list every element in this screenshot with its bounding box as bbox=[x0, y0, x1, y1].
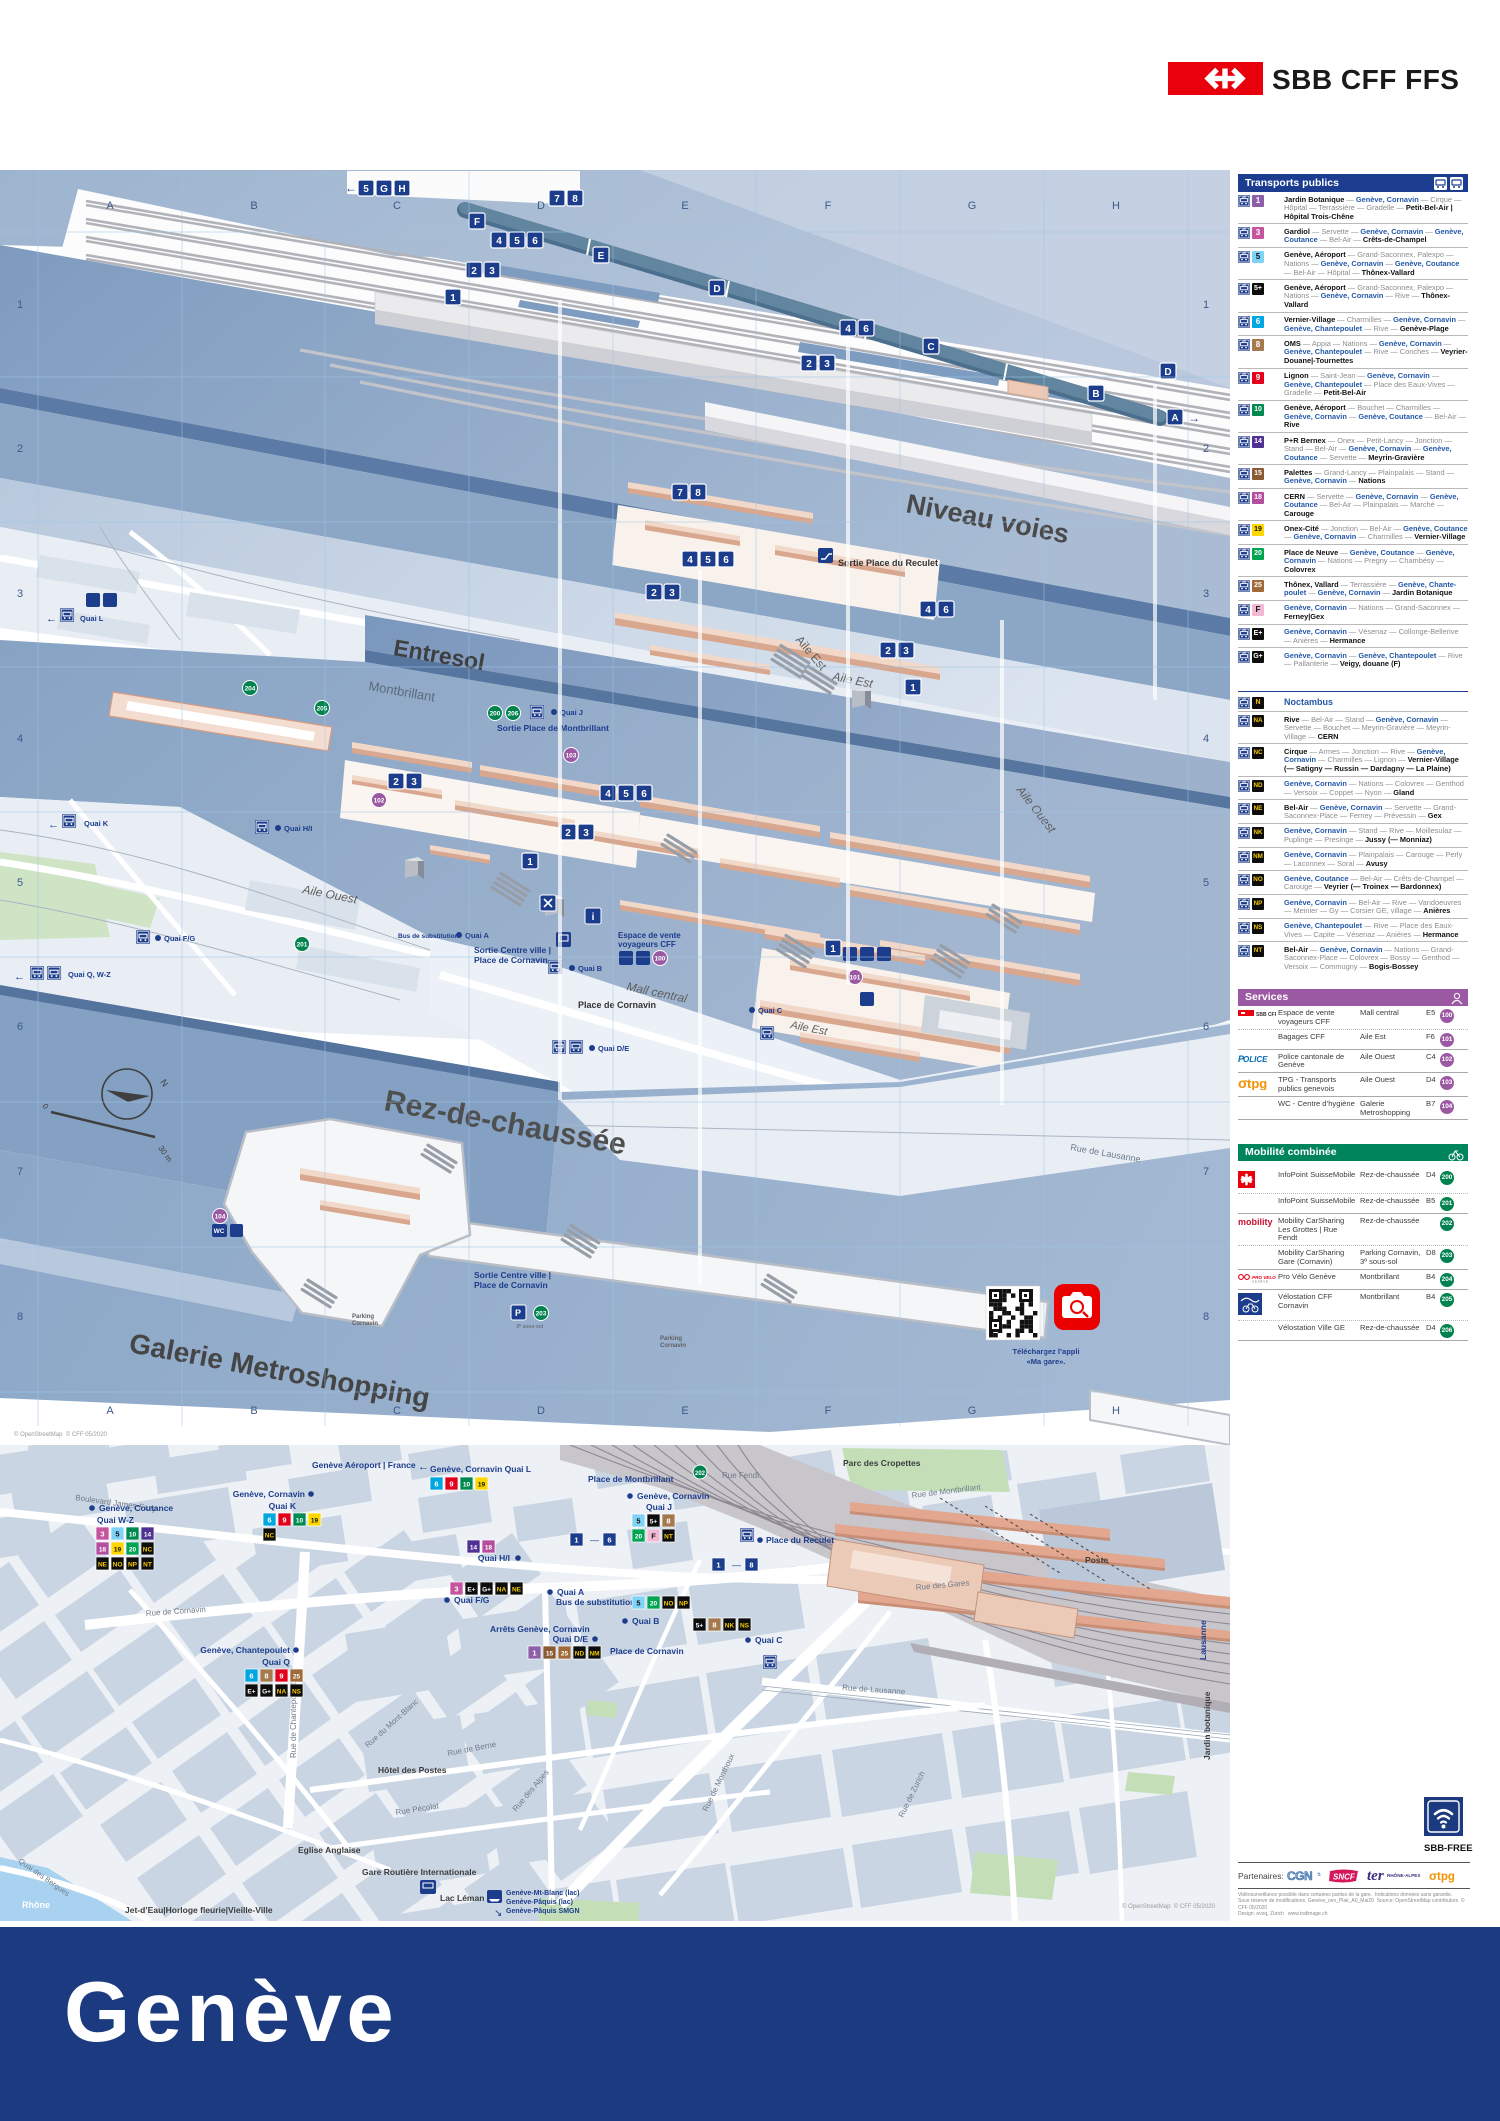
svg-text:Sortie Place de Montbrillant: Sortie Place de Montbrillant bbox=[497, 723, 609, 733]
svg-text:E: E bbox=[681, 200, 688, 212]
svg-text:8: 8 bbox=[1203, 1311, 1209, 1323]
svg-text:2: 2 bbox=[885, 646, 891, 657]
svg-text:←: ← bbox=[14, 971, 25, 983]
svg-text:Jardin botanique: Jardin botanique bbox=[1202, 1691, 1212, 1760]
svg-text:C: C bbox=[393, 200, 401, 212]
svg-text:8: 8 bbox=[572, 194, 578, 205]
svg-text:←: ← bbox=[418, 1461, 429, 1473]
svg-text:9: 9 bbox=[282, 1515, 286, 1524]
svg-text:6: 6 bbox=[723, 555, 729, 566]
svg-text:Poste: Poste bbox=[1085, 1555, 1108, 1565]
svg-text:1: 1 bbox=[830, 944, 836, 955]
svg-text:NO: NO bbox=[664, 1600, 674, 1607]
svg-text:3º sous-sol: 3º sous-sol bbox=[516, 1323, 543, 1330]
svg-text:5: 5 bbox=[17, 877, 23, 889]
svg-text:NE: NE bbox=[512, 1586, 522, 1593]
svg-text:Quai W-Z: Quai W-Z bbox=[97, 1515, 134, 1525]
svg-text:3: 3 bbox=[411, 777, 417, 788]
svg-text:A: A bbox=[106, 200, 114, 212]
svg-text:10: 10 bbox=[296, 1517, 304, 1524]
svg-text:8: 8 bbox=[712, 1620, 716, 1629]
svg-text:200: 200 bbox=[490, 710, 501, 717]
svg-text:4: 4 bbox=[496, 236, 502, 247]
svg-text:5: 5 bbox=[363, 184, 369, 195]
svg-text:Parking: Parking bbox=[352, 1314, 374, 1320]
svg-text:Bus de substitution: Bus de substitution bbox=[398, 933, 459, 940]
svg-text:Rhône: Rhône bbox=[22, 1900, 50, 1910]
svg-text:4: 4 bbox=[845, 324, 851, 335]
svg-text:8: 8 bbox=[264, 1671, 268, 1680]
svg-text:NP: NP bbox=[128, 1561, 138, 1568]
svg-text:F: F bbox=[825, 1405, 832, 1417]
svg-text:NS: NS bbox=[740, 1622, 750, 1629]
svg-text:201: 201 bbox=[297, 941, 308, 948]
svg-text:Genève, Cornavin Quai L: Genève, Cornavin Quai L bbox=[430, 1464, 531, 1474]
svg-text:NS: NS bbox=[292, 1688, 302, 1695]
svg-text:3: 3 bbox=[903, 646, 909, 657]
svg-text:4: 4 bbox=[17, 733, 23, 745]
svg-text:ND: ND bbox=[575, 1650, 585, 1657]
svg-text:2: 2 bbox=[471, 266, 477, 277]
svg-text:3: 3 bbox=[669, 588, 675, 599]
svg-text:15: 15 bbox=[546, 1650, 554, 1657]
svg-text:Genève, Coutance: Genève, Coutance bbox=[99, 1503, 173, 1513]
svg-text:8: 8 bbox=[695, 488, 701, 499]
svg-text:5: 5 bbox=[636, 1598, 640, 1607]
svg-text:202: 202 bbox=[695, 1471, 706, 1477]
svg-text:103: 103 bbox=[566, 752, 577, 759]
svg-text:SNCF: SNCF bbox=[1333, 1872, 1356, 1881]
svg-text:Place de Cornavin: Place de Cornavin bbox=[474, 955, 548, 965]
svg-text:G: G bbox=[968, 200, 977, 212]
svg-text:Quai A: Quai A bbox=[557, 1587, 584, 1597]
svg-text:Quai H/I: Quai H/I bbox=[478, 1553, 510, 1563]
svg-text:Gare Routière Internationale: Gare Routière Internationale bbox=[362, 1867, 477, 1877]
svg-text:F: F bbox=[825, 200, 832, 212]
svg-text:5: 5 bbox=[636, 1516, 640, 1525]
svg-text:Place de Montbrillant: Place de Montbrillant bbox=[588, 1474, 674, 1484]
svg-text:Quai K: Quai K bbox=[269, 1501, 297, 1511]
svg-text:3: 3 bbox=[1203, 588, 1209, 600]
svg-text:OLICE: OLICE bbox=[1243, 1055, 1268, 1064]
svg-text:tpg: tpg bbox=[1247, 1076, 1267, 1090]
svg-text:6: 6 bbox=[641, 789, 647, 800]
svg-text:6: 6 bbox=[249, 1671, 253, 1680]
svg-text:A: A bbox=[106, 1405, 114, 1417]
svg-text:Cornavin: Cornavin bbox=[660, 1343, 686, 1349]
svg-text:Quai D/E: Quai D/E bbox=[598, 1044, 629, 1053]
svg-text:Parc des Cropettes: Parc des Cropettes bbox=[843, 1458, 921, 1468]
svg-text:6: 6 bbox=[1203, 1021, 1209, 1033]
svg-text:σ: σ bbox=[1429, 1869, 1437, 1883]
svg-text:19: 19 bbox=[114, 1546, 122, 1553]
svg-text:Sortie Centre ville |: Sortie Centre ville | bbox=[474, 945, 551, 955]
svg-text:19: 19 bbox=[478, 1481, 486, 1488]
svg-text:6: 6 bbox=[863, 324, 869, 335]
svg-text:4: 4 bbox=[687, 555, 693, 566]
svg-text:Rue Fendt: Rue Fendt bbox=[722, 1471, 760, 1480]
svg-text:5: 5 bbox=[623, 789, 629, 800]
svg-text:G: G bbox=[968, 1405, 977, 1417]
svg-text:Quai D/E: Quai D/E bbox=[553, 1634, 589, 1644]
svg-text:20: 20 bbox=[635, 1533, 643, 1540]
svg-text:H: H bbox=[1112, 200, 1120, 212]
svg-text:8: 8 bbox=[17, 1311, 23, 1323]
svg-text:SBB CFF FFS: SBB CFF FFS bbox=[1256, 1012, 1276, 1017]
svg-text:204: 204 bbox=[245, 685, 256, 692]
svg-text:G: G bbox=[380, 184, 388, 195]
svg-text:NC: NC bbox=[143, 1546, 153, 1553]
svg-text:Quai C: Quai C bbox=[755, 1635, 782, 1645]
svg-text:NA: NA bbox=[277, 1688, 287, 1695]
svg-text:Quai Q: Quai Q bbox=[262, 1657, 290, 1667]
svg-text:NO: NO bbox=[113, 1561, 123, 1568]
svg-text:1: 1 bbox=[17, 299, 23, 311]
svg-text:104: 104 bbox=[215, 1213, 226, 1220]
svg-text:205: 205 bbox=[317, 705, 328, 712]
svg-text:←: ← bbox=[345, 181, 357, 195]
svg-text:Quai F/G: Quai F/G bbox=[454, 1595, 490, 1605]
svg-text:E+: E+ bbox=[467, 1586, 475, 1593]
svg-text:5: 5 bbox=[705, 555, 711, 566]
svg-text:PRO VELO: PRO VELO bbox=[1252, 1275, 1276, 1280]
svg-text:NK: NK bbox=[725, 1622, 735, 1629]
svg-text:mobility: mobility bbox=[1238, 1217, 1273, 1227]
svg-text:voyageurs CFF: voyageurs CFF bbox=[618, 940, 676, 949]
svg-text:20: 20 bbox=[129, 1546, 137, 1553]
svg-text:Genève-Mt-Blanc (lac): Genève-Mt-Blanc (lac) bbox=[506, 1890, 580, 1897]
svg-text:Quai F/G: Quai F/G bbox=[164, 934, 195, 943]
svg-text:↘: ↘ bbox=[494, 1908, 502, 1919]
svg-text:25: 25 bbox=[293, 1673, 301, 1680]
svg-text:2: 2 bbox=[565, 828, 571, 839]
svg-text:«Ma gare».: «Ma gare». bbox=[1027, 1357, 1066, 1366]
svg-text:—: — bbox=[590, 1535, 599, 1545]
svg-text:Genève, Cornavin: Genève, Cornavin bbox=[233, 1489, 305, 1499]
svg-text:Place de Cornavin: Place de Cornavin bbox=[610, 1646, 684, 1656]
svg-text:—: — bbox=[732, 1560, 741, 1570]
svg-text:E+: E+ bbox=[247, 1688, 255, 1695]
svg-text:Genève-Pâquis SMGN: Genève-Pâquis SMGN bbox=[506, 1908, 580, 1915]
svg-text:Quai Q, W-Z: Quai Q, W-Z bbox=[68, 970, 111, 979]
svg-text:Genève, Cornavin: Genève, Cornavin bbox=[637, 1491, 709, 1501]
svg-text:Genève Aéroport | France: Genève Aéroport | France bbox=[312, 1460, 416, 1470]
svg-text:6: 6 bbox=[434, 1479, 438, 1488]
svg-text:Espace de vente: Espace de vente bbox=[618, 931, 681, 940]
svg-text:Quai C: Quai C bbox=[758, 1006, 783, 1015]
svg-text:B: B bbox=[1092, 389, 1099, 400]
svg-text:2: 2 bbox=[17, 443, 23, 455]
svg-text:8: 8 bbox=[666, 1516, 670, 1525]
svg-text:Sortie Place du Reculet: Sortie Place du Reculet bbox=[838, 558, 938, 568]
svg-text:NE: NE bbox=[98, 1561, 108, 1568]
svg-text:Eglise Anglaise: Eglise Anglaise bbox=[298, 1845, 361, 1855]
svg-text:i: i bbox=[592, 912, 595, 923]
svg-text:E: E bbox=[681, 1405, 688, 1417]
svg-text:4: 4 bbox=[1203, 733, 1209, 745]
svg-text:20: 20 bbox=[650, 1600, 658, 1607]
svg-text:H: H bbox=[1112, 1405, 1120, 1417]
svg-text:Lac Léman: Lac Léman bbox=[440, 1893, 484, 1903]
svg-text:G+: G+ bbox=[482, 1586, 491, 1593]
svg-text:3: 3 bbox=[824, 359, 830, 370]
svg-text:5: 5 bbox=[1203, 877, 1209, 889]
svg-text:Quai J: Quai J bbox=[560, 708, 583, 717]
svg-text:Jet-d’Eau|Horloge fleurie|Viei: Jet-d’Eau|Horloge fleurie|Vieille-Ville bbox=[125, 1905, 273, 1915]
svg-text:206: 206 bbox=[508, 710, 519, 717]
svg-text:NP: NP bbox=[679, 1600, 689, 1607]
svg-text:3: 3 bbox=[489, 266, 495, 277]
svg-text:3: 3 bbox=[100, 1529, 104, 1538]
svg-text:Place de Cornavin: Place de Cornavin bbox=[474, 1280, 548, 1290]
svg-text:5: 5 bbox=[514, 236, 520, 247]
svg-text:Place du Reculet: Place du Reculet bbox=[766, 1535, 834, 1545]
svg-text:Parking: Parking bbox=[660, 1336, 682, 1342]
svg-text:3: 3 bbox=[17, 588, 23, 600]
svg-text:SBB CFF FFS: SBB CFF FFS bbox=[1272, 64, 1460, 95]
svg-text:D: D bbox=[537, 200, 545, 212]
svg-text:102: 102 bbox=[374, 797, 385, 804]
svg-text:6: 6 bbox=[943, 605, 949, 616]
svg-text:ter: ter bbox=[1367, 1868, 1384, 1884]
svg-text:1: 1 bbox=[527, 857, 533, 868]
svg-text:tpg: tpg bbox=[1437, 1871, 1455, 1883]
svg-text:Quai K: Quai K bbox=[84, 819, 109, 828]
svg-text:4: 4 bbox=[925, 605, 931, 616]
svg-text:8: 8 bbox=[749, 1560, 753, 1569]
svg-text:4: 4 bbox=[605, 789, 611, 800]
svg-text:6: 6 bbox=[607, 1535, 611, 1544]
svg-text:A: A bbox=[1171, 413, 1178, 424]
svg-text:B: B bbox=[250, 1405, 257, 1417]
svg-text:2: 2 bbox=[393, 777, 399, 788]
svg-text:9: 9 bbox=[449, 1479, 453, 1488]
svg-text:1: 1 bbox=[574, 1535, 578, 1544]
svg-text:5+: 5+ bbox=[696, 1622, 704, 1629]
svg-text:D: D bbox=[713, 284, 720, 295]
svg-text:Quai B: Quai B bbox=[632, 1616, 659, 1626]
svg-text:2: 2 bbox=[806, 359, 812, 370]
svg-text:NA: NA bbox=[497, 1586, 507, 1593]
svg-text:7: 7 bbox=[1203, 1166, 1209, 1178]
svg-text:5+: 5+ bbox=[650, 1518, 658, 1525]
svg-text:1: 1 bbox=[716, 1560, 720, 1569]
svg-text:⇅: ⇅ bbox=[1317, 1872, 1321, 1878]
svg-text:7: 7 bbox=[17, 1166, 23, 1178]
svg-text:RHÔNE-ALPES: RHÔNE-ALPES bbox=[1387, 1871, 1420, 1878]
svg-text:Place de Cornavin: Place de Cornavin bbox=[578, 1000, 656, 1010]
svg-text:NC: NC bbox=[265, 1532, 275, 1539]
svg-text:Arrêts Genève, Cornavin: Arrêts Genève, Cornavin bbox=[490, 1624, 590, 1634]
svg-text:D: D bbox=[537, 1405, 545, 1417]
svg-text:10: 10 bbox=[463, 1481, 471, 1488]
svg-text:Genève, Chantepoulet: Genève, Chantepoulet bbox=[200, 1645, 290, 1655]
svg-text:Hôtel des Postes: Hôtel des Postes bbox=[378, 1765, 447, 1775]
svg-text:18: 18 bbox=[485, 1544, 493, 1551]
svg-text:H: H bbox=[398, 184, 405, 195]
svg-text:2: 2 bbox=[1203, 443, 1209, 455]
svg-text:Quai L: Quai L bbox=[80, 614, 104, 623]
svg-text:C: C bbox=[927, 342, 934, 353]
svg-text:18: 18 bbox=[99, 1546, 107, 1553]
svg-text:Quai B: Quai B bbox=[578, 964, 603, 973]
svg-text:←: ← bbox=[48, 819, 59, 831]
svg-text:→: → bbox=[1188, 411, 1200, 425]
svg-text:14: 14 bbox=[470, 1544, 478, 1551]
svg-text:5: 5 bbox=[115, 1529, 119, 1538]
svg-text:Lausanne: Lausanne bbox=[1198, 1620, 1208, 1660]
svg-text:Bus de substitution: Bus de substitution bbox=[556, 1597, 635, 1607]
svg-text:14: 14 bbox=[144, 1531, 152, 1538]
svg-text:7: 7 bbox=[554, 194, 560, 205]
svg-text:100: 100 bbox=[655, 955, 666, 962]
svg-text:Quai J: Quai J bbox=[646, 1502, 672, 1512]
svg-text:10: 10 bbox=[129, 1531, 137, 1538]
svg-text:© OpenStreetMap © CFF 05/2020: © OpenStreetMap © CFF 05/2020 bbox=[14, 1431, 108, 1438]
svg-text:Quai H/I: Quai H/I bbox=[284, 824, 312, 833]
svg-text:Cornavin: Cornavin bbox=[352, 1321, 378, 1327]
svg-text:6: 6 bbox=[17, 1021, 23, 1033]
svg-text:2: 2 bbox=[651, 588, 657, 599]
svg-text:G+: G+ bbox=[262, 1688, 271, 1695]
svg-text:NT: NT bbox=[664, 1533, 673, 1540]
svg-text:C: C bbox=[393, 1405, 401, 1417]
svg-text:19: 19 bbox=[311, 1517, 319, 1524]
svg-text:© OpenStreetMap © CFF 05/2020: © OpenStreetMap © CFF 05/2020 bbox=[1122, 1903, 1216, 1910]
svg-text:Sortie Centre ville |: Sortie Centre ville | bbox=[474, 1270, 551, 1280]
svg-text:203: 203 bbox=[536, 1310, 547, 1317]
svg-text:Genève-Pâquis (lac): Genève-Pâquis (lac) bbox=[506, 1899, 573, 1906]
svg-text:101: 101 bbox=[850, 974, 861, 981]
svg-text:P: P bbox=[515, 1308, 521, 1318]
svg-text:3: 3 bbox=[454, 1584, 458, 1593]
svg-text:F: F bbox=[651, 1531, 656, 1540]
svg-text:CGN: CGN bbox=[1287, 1869, 1312, 1883]
svg-text:1: 1 bbox=[450, 293, 456, 304]
svg-text:7: 7 bbox=[677, 488, 683, 499]
svg-text:F: F bbox=[474, 217, 480, 228]
svg-text:NM: NM bbox=[589, 1650, 599, 1657]
svg-text:9: 9 bbox=[279, 1671, 283, 1680]
svg-text:D: D bbox=[1164, 367, 1171, 378]
svg-text:B: B bbox=[250, 200, 257, 212]
svg-text:1: 1 bbox=[1203, 299, 1209, 311]
svg-text:6: 6 bbox=[532, 236, 538, 247]
svg-text:3: 3 bbox=[583, 828, 589, 839]
svg-text:Téléchargez l’appli: Téléchargez l’appli bbox=[1012, 1347, 1079, 1356]
svg-text:6: 6 bbox=[267, 1515, 271, 1524]
svg-text:1: 1 bbox=[910, 683, 916, 694]
svg-text:25: 25 bbox=[561, 1650, 569, 1657]
svg-text:NT: NT bbox=[143, 1561, 152, 1568]
svg-text:E: E bbox=[598, 251, 605, 262]
svg-text:WC: WC bbox=[214, 1228, 225, 1235]
svg-text:1: 1 bbox=[532, 1648, 536, 1657]
svg-text:←: ← bbox=[46, 613, 57, 625]
